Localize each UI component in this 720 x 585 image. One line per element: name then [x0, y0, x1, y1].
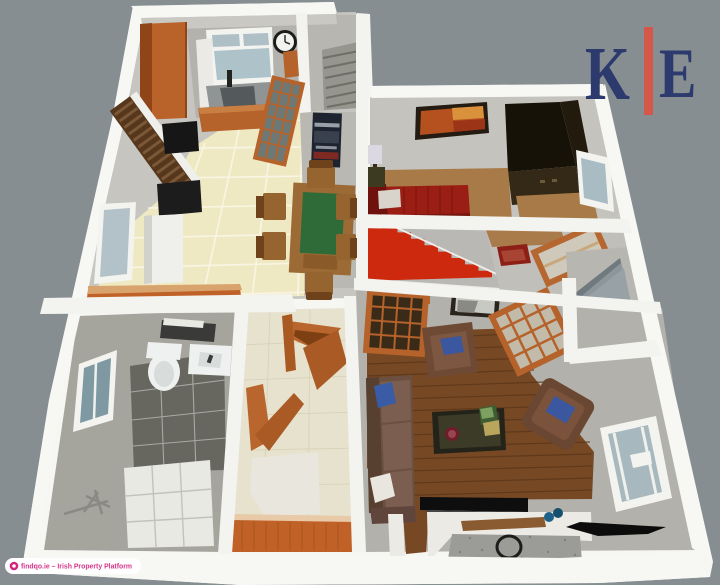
svg-text:E: E [659, 34, 696, 113]
svg-text:K: K [585, 31, 630, 115]
svg-text:findqo.ie – Irish Property Pla: findqo.ie – Irish Property Platform [21, 564, 132, 571]
